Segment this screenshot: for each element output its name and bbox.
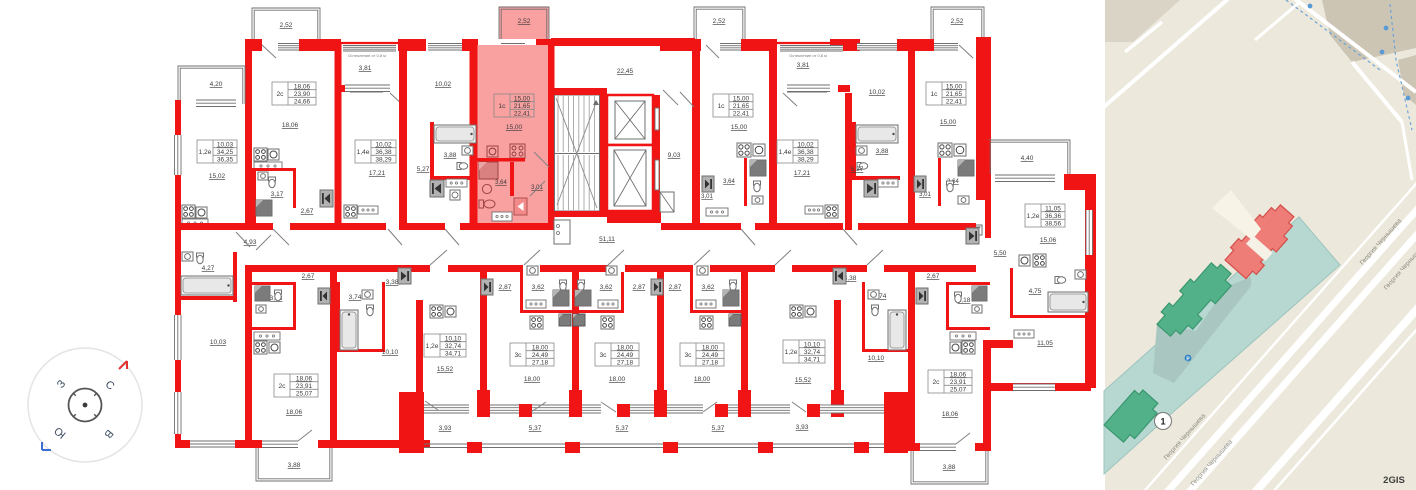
svg-text:2,67: 2,67	[302, 273, 315, 280]
svg-text:Остекление от 0,8 м: Остекление от 0,8 м	[348, 53, 386, 58]
svg-text:2с: 2с	[276, 91, 284, 98]
svg-text:5,37: 5,37	[616, 425, 629, 432]
svg-text:1с: 1с	[717, 103, 725, 110]
svg-text:11,05: 11,05	[1045, 205, 1061, 212]
svg-text:21,65: 21,65	[946, 91, 963, 98]
svg-text:3,62: 3,62	[532, 284, 545, 291]
svg-text:5,50: 5,50	[994, 250, 1007, 257]
svg-text:3с: 3с	[684, 352, 692, 359]
svg-text:1,4е: 1,4е	[356, 149, 369, 156]
svg-text:3,81: 3,81	[359, 65, 372, 72]
svg-text:3,88: 3,88	[943, 464, 956, 471]
svg-text:25,07: 25,07	[950, 387, 967, 394]
svg-text:10,02: 10,02	[375, 141, 392, 148]
svg-text:3,38: 3,38	[386, 279, 399, 286]
svg-text:10,10: 10,10	[445, 335, 462, 342]
svg-text:18,06: 18,06	[294, 83, 311, 90]
svg-text:24,49: 24,49	[532, 352, 549, 359]
svg-text:15,00: 15,00	[731, 124, 748, 131]
svg-text:5,27: 5,27	[851, 166, 864, 173]
svg-text:51,11: 51,11	[599, 236, 615, 243]
svg-text:4,27: 4,27	[202, 265, 215, 272]
svg-text:15,52: 15,52	[795, 377, 812, 384]
svg-text:18,00: 18,00	[524, 376, 541, 383]
svg-text:23,91: 23,91	[296, 383, 313, 390]
svg-text:2,87: 2,87	[669, 284, 682, 291]
svg-text:18,00: 18,00	[694, 376, 711, 383]
svg-text:2с: 2с	[278, 383, 286, 390]
svg-text:3,01: 3,01	[701, 194, 713, 200]
svg-text:23,90: 23,90	[294, 91, 311, 98]
svg-text:18,00: 18,00	[609, 376, 626, 383]
svg-text:38,29: 38,29	[797, 157, 814, 164]
svg-text:3,93: 3,93	[439, 425, 452, 432]
svg-text:21,65: 21,65	[733, 103, 750, 110]
svg-text:Остекление от 0,8 м: Остекление от 0,8 м	[789, 53, 827, 58]
svg-text:36,38: 36,38	[797, 149, 814, 156]
svg-text:32,74: 32,74	[445, 343, 462, 350]
svg-text:10,10: 10,10	[868, 355, 885, 362]
svg-text:1с: 1с	[930, 91, 938, 98]
svg-text:3,88: 3,88	[876, 148, 889, 155]
svg-text:1,2е: 1,2е	[1026, 213, 1039, 220]
svg-text:3,88: 3,88	[444, 152, 457, 159]
svg-text:10,02: 10,02	[869, 89, 886, 96]
svg-text:36,36: 36,36	[1045, 213, 1062, 220]
svg-text:1: 1	[1160, 417, 1165, 427]
svg-text:24,49: 24,49	[617, 352, 634, 359]
svg-text:21,65: 21,65	[514, 103, 531, 110]
svg-text:3,74: 3,74	[349, 294, 362, 301]
svg-text:25,07: 25,07	[296, 391, 313, 398]
svg-text:15,00: 15,00	[514, 95, 531, 102]
svg-text:3,62: 3,62	[600, 284, 613, 291]
svg-text:4,20: 4,20	[210, 81, 223, 88]
svg-text:3,17: 3,17	[271, 191, 284, 198]
svg-text:2,52: 2,52	[280, 22, 293, 29]
svg-text:22,41: 22,41	[733, 111, 750, 118]
svg-text:2GIS: 2GIS	[1383, 475, 1405, 486]
svg-text:18,00: 18,00	[702, 344, 719, 351]
svg-text:10,02: 10,02	[435, 81, 452, 88]
svg-text:27,18: 27,18	[532, 360, 549, 367]
svg-text:18,00: 18,00	[617, 344, 634, 351]
svg-text:18,06: 18,06	[950, 371, 967, 378]
svg-text:2,87: 2,87	[499, 284, 512, 291]
svg-text:34,71: 34,71	[804, 357, 821, 364]
svg-text:5,37: 5,37	[529, 425, 542, 432]
svg-text:1с: 1с	[498, 103, 506, 110]
svg-text:1,2е: 1,2е	[198, 149, 211, 156]
svg-text:18,06: 18,06	[296, 375, 313, 382]
svg-text:4,40: 4,40	[1021, 155, 1034, 162]
svg-text:10,03: 10,03	[210, 339, 227, 346]
svg-text:22,41: 22,41	[514, 111, 531, 118]
svg-text:38,29: 38,29	[375, 157, 392, 164]
svg-text:15,52: 15,52	[437, 366, 454, 373]
svg-text:3,64: 3,64	[723, 179, 735, 185]
svg-text:2,67: 2,67	[301, 208, 314, 215]
svg-text:1,2е: 1,2е	[784, 349, 797, 356]
svg-text:3,93: 3,93	[796, 424, 809, 431]
svg-text:5,27: 5,27	[417, 166, 430, 173]
svg-text:27,18: 27,18	[617, 360, 634, 367]
svg-text:18,00: 18,00	[532, 344, 549, 351]
svg-text:18,06: 18,06	[282, 122, 299, 129]
svg-text:3,81: 3,81	[797, 62, 810, 69]
svg-text:15,06: 15,06	[1040, 237, 1057, 244]
svg-text:3,62: 3,62	[702, 284, 715, 291]
svg-text:2,52: 2,52	[713, 18, 726, 25]
svg-text:36,38: 36,38	[375, 149, 392, 156]
svg-text:4,75: 4,75	[1029, 288, 1042, 295]
svg-text:15,02: 15,02	[209, 173, 226, 180]
svg-text:32,74: 32,74	[804, 349, 821, 356]
svg-text:24,66: 24,66	[294, 99, 311, 106]
svg-text:38,56: 38,56	[1045, 221, 1062, 228]
svg-text:36,35: 36,35	[217, 157, 234, 164]
svg-text:10,02: 10,02	[797, 141, 814, 148]
svg-text:2,67: 2,67	[927, 273, 940, 280]
svg-text:1,4е: 1,4е	[778, 149, 791, 156]
svg-text:2с: 2с	[932, 379, 940, 386]
svg-text:3с: 3с	[599, 352, 607, 359]
svg-text:27,18: 27,18	[702, 360, 719, 367]
svg-text:15,00: 15,00	[946, 83, 963, 90]
svg-text:11,05: 11,05	[1037, 340, 1053, 347]
svg-text:34,71: 34,71	[445, 351, 462, 358]
svg-text:24,49: 24,49	[702, 352, 719, 359]
svg-text:9,03: 9,03	[668, 152, 681, 159]
svg-text:3,01: 3,01	[919, 192, 931, 198]
svg-text:10,03: 10,03	[217, 141, 234, 148]
svg-text:34,25: 34,25	[217, 149, 234, 156]
svg-text:18,06: 18,06	[942, 411, 959, 418]
svg-text:3с: 3с	[514, 352, 522, 359]
svg-text:2,52: 2,52	[951, 18, 964, 25]
svg-text:1,2е: 1,2е	[425, 343, 438, 350]
svg-text:15,00: 15,00	[733, 95, 750, 102]
svg-text:10,10: 10,10	[382, 349, 399, 356]
svg-text:5,37: 5,37	[712, 425, 725, 432]
svg-text:2,87: 2,87	[633, 284, 646, 291]
svg-text:17,21: 17,21	[794, 170, 811, 177]
svg-text:10,10: 10,10	[804, 341, 821, 348]
svg-text:18,06: 18,06	[286, 409, 303, 416]
svg-text:3,88: 3,88	[288, 462, 301, 469]
svg-text:15,00: 15,00	[940, 119, 957, 126]
svg-text:2,52: 2,52	[518, 18, 531, 25]
svg-text:15,00: 15,00	[506, 124, 523, 131]
svg-text:22,41: 22,41	[946, 99, 963, 106]
svg-text:22,45: 22,45	[617, 68, 634, 75]
svg-text:17,21: 17,21	[369, 170, 386, 177]
svg-text:23,91: 23,91	[950, 379, 967, 386]
svg-text:3,64: 3,64	[495, 180, 507, 186]
